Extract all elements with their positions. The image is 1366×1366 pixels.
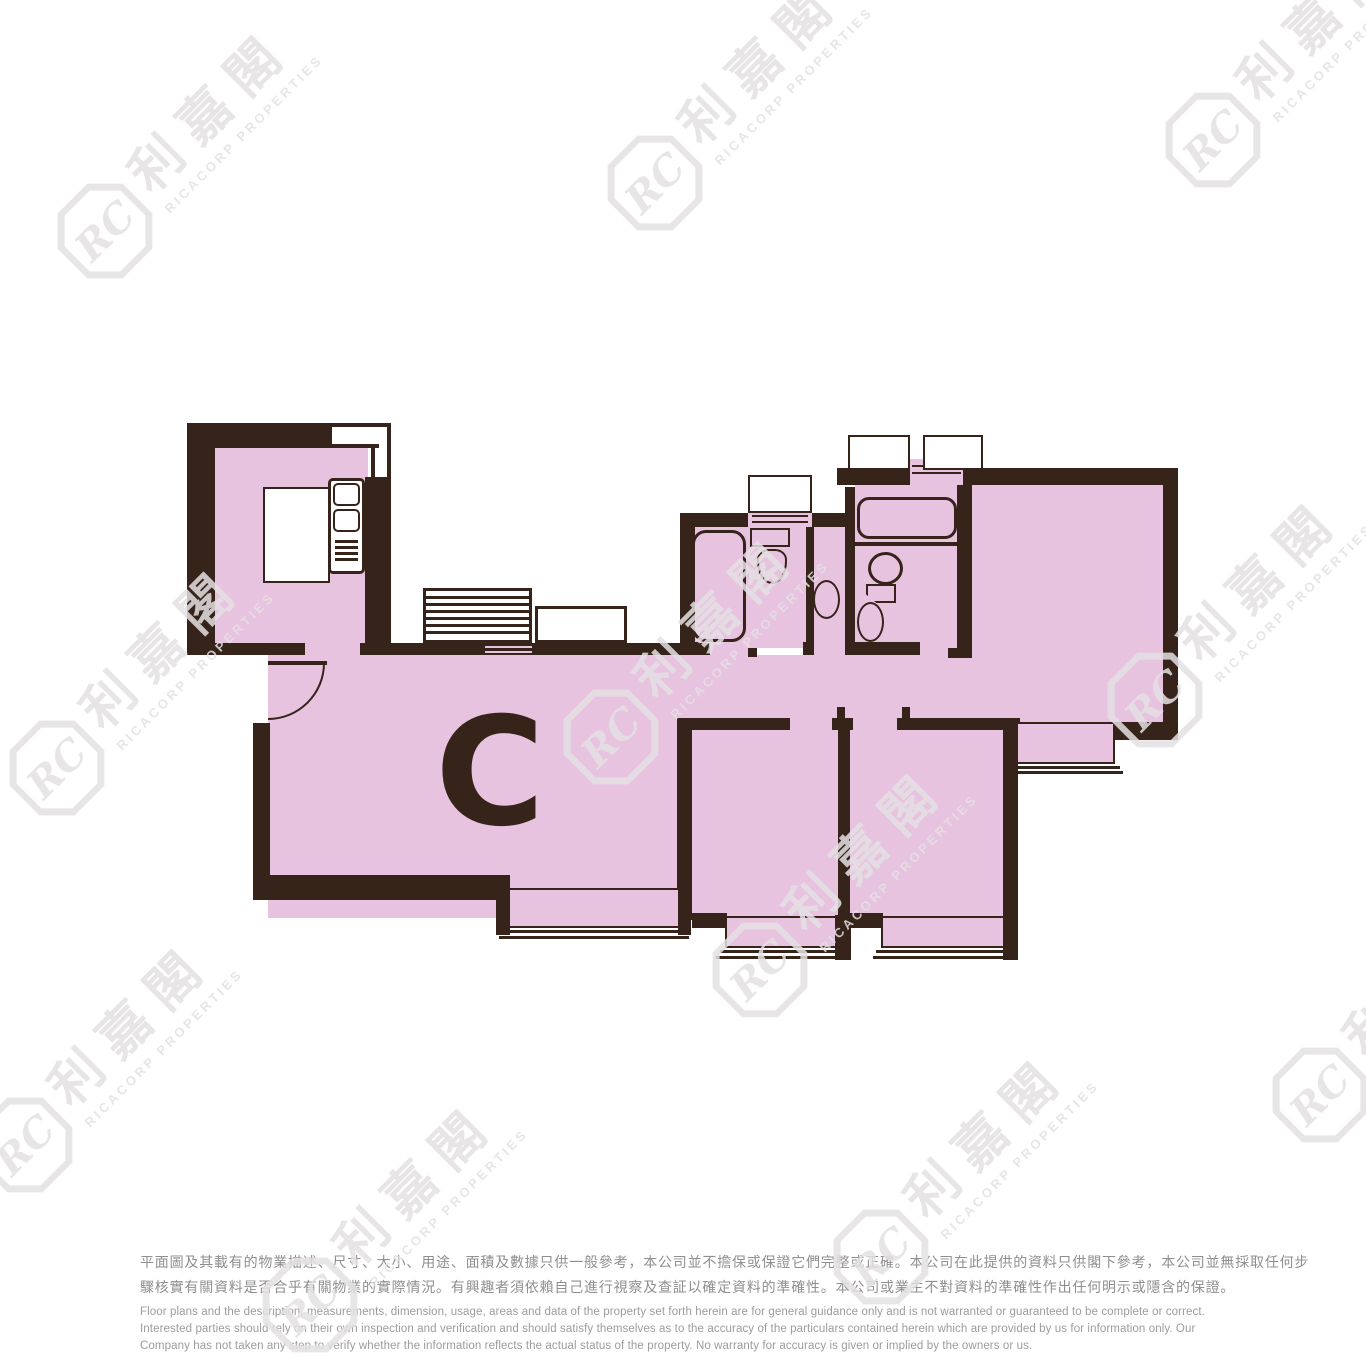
watermark-chinese-text: 利嘉閣 [670, 0, 862, 155]
ricacorp-logo-icon: RC [0, 1080, 90, 1210]
watermark: RC 利嘉閣 RICACORP PROPERTIES [1148, 0, 1366, 205]
wall [677, 718, 790, 730]
bathtub-edge-line [853, 542, 957, 546]
ricacorp-logo-icon: RC [590, 118, 720, 248]
watermark-chinese-text: 利嘉閣 [896, 1036, 1088, 1228]
door-frame-stub [748, 648, 757, 657]
bay-window-glazing-line [499, 936, 689, 939]
window-bath-2 [923, 435, 983, 470]
wall [1115, 722, 1178, 740]
wall [1163, 468, 1178, 740]
louver-slat [426, 610, 529, 613]
disclaimer-en-line-3: Company has not taken any step to verify… [140, 1338, 1366, 1355]
watermark-monogram: RC [590, 118, 720, 248]
bay-window-glazing-line [720, 950, 842, 953]
watermark-text: 利嘉閣 RICACORP PROPERTIES [40, 924, 246, 1130]
wall [360, 643, 485, 655]
wall [897, 718, 1020, 730]
watermark-english-text: RICACORP PROPERTIES [1269, 0, 1366, 125]
louver-slat [426, 603, 529, 606]
bay-window-bedroom-1 [725, 916, 837, 948]
watermark-chinese-text: 利嘉閣 [120, 10, 312, 202]
floor-plan-page: C 平面圖及其載有的物業描述、尺寸、大小、用途、面積及數據只供一般參考，本公司並… [0, 0, 1366, 1366]
wall [253, 723, 270, 900]
wall [838, 718, 850, 920]
wall [845, 642, 920, 655]
watermark-monogram: RC [40, 166, 170, 296]
bay-window-glazing-line [716, 956, 846, 959]
watermark-english-text: RICACORP PROPERTIES [161, 52, 325, 216]
master-bedroom-floor [972, 485, 1163, 722]
bay-window-glazing-line [873, 956, 1015, 959]
ricacorp-logo-icon: RC [40, 166, 170, 296]
unit-label: C [420, 705, 560, 840]
wall [803, 642, 814, 655]
disclaimer-en-line-1: Floor plans and the description, measure… [140, 1304, 1366, 1321]
watermark-text: 利嘉閣 RICACORP PROPERTIES [1170, 479, 1366, 685]
wall [845, 487, 855, 648]
bay-window-bedroom-2 [881, 916, 1007, 948]
wall [837, 468, 1163, 485]
wall [692, 913, 727, 928]
watermark-english-text: RICACORP PROPERTIES [711, 4, 875, 168]
kitchen-door-opening [305, 643, 360, 655]
bay-window-side-wall [1003, 915, 1018, 960]
bay-window-glazing-line [503, 930, 685, 933]
louver-slat [426, 624, 529, 627]
watermark-text: 利嘉閣 RICACORP PROPERTIES [896, 1036, 1102, 1242]
bay-window-glazing-line [876, 950, 1012, 953]
bay-window-glazing-line [1008, 766, 1120, 769]
threshold-line [485, 646, 532, 649]
toilet-bowl-icon [868, 552, 903, 585]
watermark-chinese-text: 利嘉閣 [1228, 0, 1366, 112]
bay-window-side-wall [835, 915, 851, 960]
kitchen-counter [263, 487, 330, 583]
wall [253, 875, 510, 900]
watermark-english-text: RICACORP PROPERTIES [81, 966, 245, 1130]
ac-platform-line [912, 472, 961, 474]
disclaimer-zh-line-2: 驟核實有關資料是否合乎有關物業的實際情況。有興趣者須依賴自己進行視察及查証以確定… [140, 1275, 1340, 1300]
utility-platform [535, 606, 627, 643]
kitchen-corner-window [371, 444, 375, 479]
watermark-monogram: RC [1148, 75, 1278, 205]
wall [957, 485, 972, 658]
watermark-chinese-text: 利嘉閣 [40, 924, 232, 1116]
sink-basin-icon [333, 483, 360, 506]
bathtub-icon [857, 497, 957, 539]
watermark-text: 利嘉閣 RICACORP PROPERTIES [1335, 874, 1366, 1080]
wall [365, 477, 391, 655]
watermark: RC 利嘉閣 RICACORP PROPERTIES [0, 918, 252, 1210]
watermark-english-text: RICACORP PROPERTIES [937, 1078, 1101, 1242]
wall [948, 648, 972, 658]
watermark-monogram: RC [0, 1080, 90, 1210]
washbasin-icon [813, 580, 840, 619]
window-sill-line [752, 521, 808, 523]
door-frame-stub [837, 707, 845, 718]
threshold-line [485, 651, 532, 654]
bathtub-icon [692, 530, 746, 642]
window-bath-1 [848, 435, 910, 470]
louver-slat [426, 617, 529, 620]
sink-basin-icon [333, 509, 360, 532]
wall [850, 913, 883, 928]
bay-window-glazing-line [1005, 771, 1123, 774]
stove-grill-line [335, 552, 358, 555]
watermark: RC 利嘉閣 RICACORP PROPERTIES [590, 0, 882, 248]
wall [187, 423, 215, 655]
watermark-text: 利嘉閣 RICACORP PROPERTIES [1228, 0, 1366, 125]
louver-slat [426, 631, 529, 634]
wall [187, 423, 332, 448]
bay-window-master [1016, 722, 1115, 764]
stove-grill-line [335, 546, 358, 549]
watermark-chinese-text: 利嘉閣 [325, 1084, 517, 1276]
kitchen-corner-window [332, 423, 391, 427]
watermark-chinese-text: 利嘉閣 [1170, 479, 1362, 671]
ricacorp-logo-icon: RC [1255, 1030, 1366, 1160]
stove-grill-line [335, 558, 358, 561]
wall [680, 642, 700, 655]
disclaimer-zh-line-1: 平面圖及其載有的物業描述、尺寸、大小、用途、面積及數據只供一般參考，本公司並不擔… [140, 1250, 1340, 1275]
door-frame-stub [902, 707, 910, 718]
watermark: RC 利嘉閣 RICACORP PROPERTIES [1255, 868, 1366, 1160]
bay-window-living [508, 888, 680, 928]
watermark: RC 利嘉閣 RICACORP PROPERTIES [40, 4, 332, 296]
kitchen-corner-window [387, 423, 391, 479]
watermark-monogram: RC [1255, 1030, 1366, 1160]
watermark-chinese-text: 利嘉閣 [1335, 874, 1366, 1066]
watermark-monogram: RC [0, 703, 122, 833]
watermark-text: 利嘉閣 RICACORP PROPERTIES [670, 0, 876, 168]
wall [187, 643, 305, 655]
ricacorp-logo-icon: RC [0, 703, 122, 833]
window-sill-line [752, 515, 808, 517]
ricacorp-logo-icon: RC [1148, 75, 1278, 205]
basin-nook-opening [814, 642, 845, 655]
stove-grill-line [335, 540, 358, 543]
wall [680, 513, 748, 527]
louver-slat [426, 596, 529, 599]
window-toilet [748, 475, 812, 513]
washbasin-icon [857, 602, 884, 642]
watermark-text: 利嘉閣 RICACORP PROPERTIES [120, 10, 326, 216]
watermark-english-text: RICACORP PROPERTIES [1211, 521, 1366, 685]
wall [806, 527, 814, 648]
toilet-cistern-icon [750, 528, 790, 547]
disclaimer-en-line-2: Interested parties should rely on their … [140, 1321, 1366, 1338]
